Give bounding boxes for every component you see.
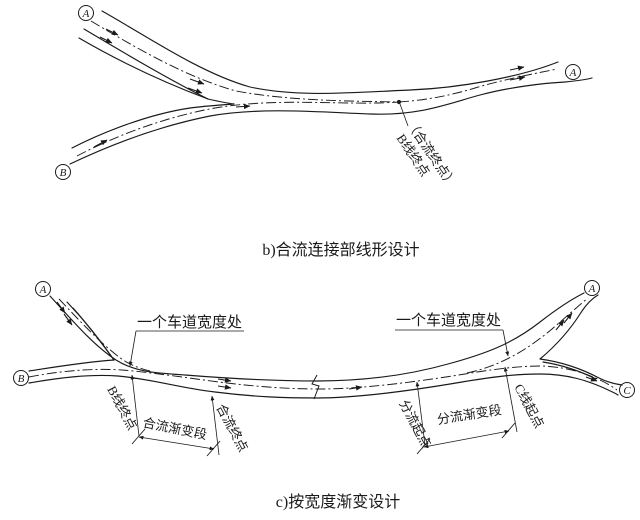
ramp-a-left-inner-edge-2 [73, 308, 114, 360]
terminal-label: A [82, 8, 90, 20]
road-edge-top [102, 11, 558, 93]
extension-c-line-start [505, 367, 517, 432]
centerline-a-left [59, 299, 150, 371]
break-mark [312, 375, 319, 399]
dimension-line [424, 431, 509, 447]
road-edge-top [50, 293, 584, 381]
road-edge-bottom [70, 78, 592, 164]
lane-width-callout-right: 一个车道宽度处 [395, 312, 508, 356]
terminal-c: C [620, 383, 635, 398]
flow-arrow [218, 386, 231, 388]
merge-nose-link [208, 99, 234, 104]
terminal-a-start: A [79, 6, 94, 21]
caption-merge-alignment: b)合流连接部线形设计 [262, 241, 419, 259]
caption-width-taper: c)按宽度渐变设计 [276, 493, 400, 511]
terminal-a-left: A [36, 282, 51, 297]
terminal-b: B [14, 371, 29, 386]
flow-arrow [218, 379, 231, 381]
c-line-start-label: C线起点 [511, 381, 547, 430]
flow-arrow [510, 67, 524, 70]
flow-arrow [94, 140, 107, 147]
centerline-a-right [467, 298, 588, 373]
merge-end-point-dot [397, 100, 401, 104]
lane-width-label-left: 一个车道宽度处 [137, 314, 242, 331]
terminal-a-end: A [566, 65, 581, 80]
flow-arrow [236, 106, 250, 107]
terminal-a-right: A [585, 281, 600, 296]
lane-width-callout-left: 一个车道宽度处 [130, 314, 244, 366]
dimension-merge-taper: 合流渐变段 [132, 415, 220, 456]
terminal-label: C [623, 385, 631, 397]
terminal-label: A [588, 283, 596, 295]
terminal-label: A [39, 284, 47, 296]
annotation-merge-end: （合流终点） B线终点 [390, 117, 461, 202]
b-line-end-label: B线终点 [104, 383, 140, 432]
terminal-b-start: B [56, 165, 71, 180]
lane-width-label-right: 一个车道宽度处 [396, 312, 501, 329]
figure-canvas: （合流终点） B线终点 A B A b)合流连接部线形设计 [0, 0, 640, 520]
terminal-label: A [569, 67, 577, 79]
centerline-b [77, 102, 399, 156]
flow-arrow [106, 29, 118, 35]
flow-arrow [190, 79, 204, 84]
ramp-b-top-edge [72, 104, 234, 148]
dimension-tick [502, 423, 515, 438]
diagram-merge-alignment: （合流终点） B线终点 A B A [56, 6, 593, 202]
diagram-width-taper: 一个车道宽度处 一个车道宽度处 合流渐变段 分流渐变段 B线终点 [14, 281, 635, 457]
terminal-label: B [60, 167, 67, 179]
diverge-start-label: 分流起点 [396, 397, 434, 450]
merge-end-label: 合流终点 [213, 401, 251, 454]
diverge-taper-label: 分流渐变段 [436, 402, 503, 427]
terminal-label: B [18, 373, 25, 385]
road-junction-diagrams: （合流终点） B线终点 A B A b)合流连接部线形设计 [0, 0, 640, 520]
merge-taper-label: 合流渐变段 [142, 415, 209, 442]
centerline-merged [399, 69, 557, 102]
dimension-diverge-taper: 分流渐变段 [417, 402, 515, 454]
ramp-a-right-edge [540, 295, 598, 359]
ramp-a-inner-edge-2 [79, 38, 208, 99]
centerline-a [91, 21, 399, 102]
leader-arrow [130, 331, 136, 366]
